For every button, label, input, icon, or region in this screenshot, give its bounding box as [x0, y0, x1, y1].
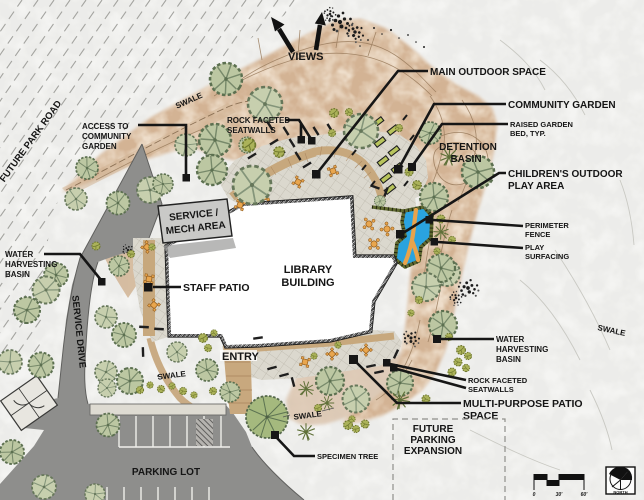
- svg-text:RAISED GARDEN: RAISED GARDEN: [510, 120, 573, 129]
- svg-text:WATER: WATER: [5, 250, 34, 259]
- svg-text:BASIN: BASIN: [496, 355, 521, 364]
- svg-text:VIEWS: VIEWS: [288, 51, 323, 63]
- svg-text:EXPANSION: EXPANSION: [404, 446, 462, 457]
- svg-text:STAFF PATIO: STAFF PATIO: [183, 282, 250, 294]
- svg-text:BASIN: BASIN: [450, 154, 481, 165]
- svg-text:PLAY: PLAY: [525, 243, 544, 252]
- svg-text:PLAY AREA: PLAY AREA: [508, 181, 564, 192]
- svg-text:SPECIMEN TREE: SPECIMEN TREE: [317, 452, 378, 461]
- svg-text:MAIN OUTDOOR SPACE: MAIN OUTDOOR SPACE: [430, 67, 546, 78]
- svg-text:HARVESTING: HARVESTING: [5, 260, 57, 269]
- svg-text:PARKING LOT: PARKING LOT: [132, 467, 200, 478]
- svg-text:HARVESTING: HARVESTING: [496, 345, 548, 354]
- svg-text:SEATWALLS: SEATWALLS: [468, 385, 514, 394]
- svg-text:60': 60': [581, 492, 589, 498]
- svg-text:GARDEN: GARDEN: [82, 142, 117, 151]
- svg-text:0: 0: [533, 492, 536, 498]
- svg-text:BED, TYP.: BED, TYP.: [510, 129, 546, 138]
- svg-text:30': 30': [556, 492, 564, 498]
- svg-text:COMMUNITY: COMMUNITY: [82, 132, 132, 141]
- svg-text:PARKING: PARKING: [410, 435, 456, 446]
- svg-text:CHILDREN'S OUTDOOR: CHILDREN'S OUTDOOR: [508, 169, 623, 180]
- svg-text:DETENTION: DETENTION: [439, 142, 497, 153]
- svg-text:BUILDING: BUILDING: [281, 277, 334, 289]
- svg-text:ROCK FACETED: ROCK FACETED: [227, 116, 290, 125]
- svg-text:ACCESS TO: ACCESS TO: [82, 122, 129, 131]
- svg-text:FUTURE: FUTURE: [413, 424, 454, 435]
- svg-text:FENCE: FENCE: [525, 230, 550, 239]
- svg-text:ENTRY: ENTRY: [222, 351, 260, 363]
- svg-text:PERIMETER: PERIMETER: [525, 221, 569, 230]
- svg-text:SURFACING: SURFACING: [525, 252, 569, 261]
- svg-text:SEATWALLS: SEATWALLS: [227, 126, 276, 135]
- svg-text:WATER: WATER: [496, 335, 525, 344]
- svg-text:LIBRARY: LIBRARY: [284, 264, 333, 276]
- svg-text:COMMUNITY GARDEN: COMMUNITY GARDEN: [508, 100, 616, 111]
- svg-text:BASIN: BASIN: [5, 270, 30, 279]
- svg-text:NORTH: NORTH: [613, 490, 627, 495]
- svg-text:ROCK FACETED: ROCK FACETED: [468, 376, 528, 385]
- svg-text:MULTI-PURPOSE PATIO: MULTI-PURPOSE PATIO: [463, 398, 583, 410]
- svg-text:SPACE: SPACE: [463, 410, 498, 422]
